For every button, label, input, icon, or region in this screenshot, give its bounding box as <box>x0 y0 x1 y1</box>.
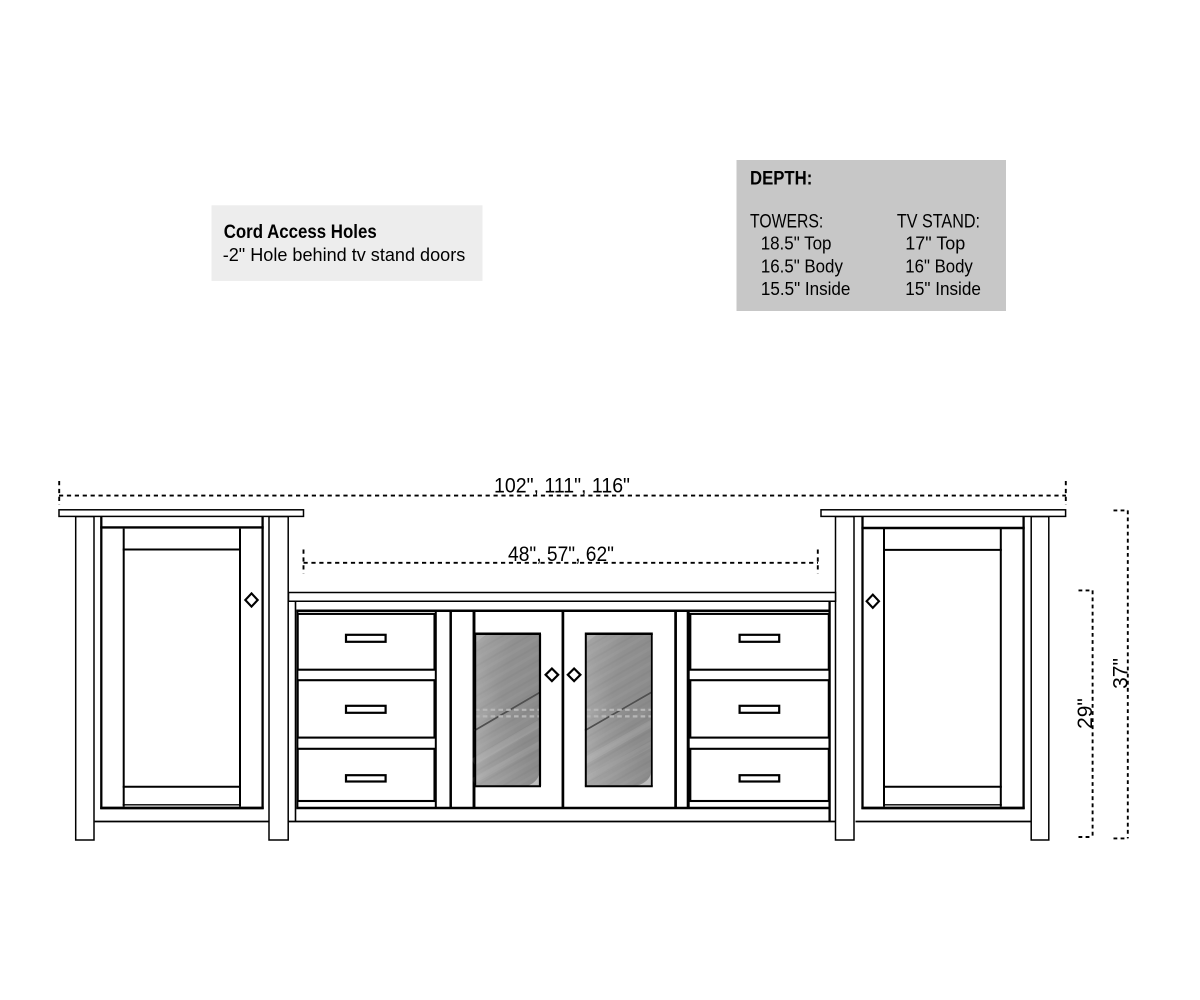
svg-text:Cord Access Holes: Cord Access Holes <box>224 221 377 243</box>
svg-text:15" Inside: 15" Inside <box>905 278 981 299</box>
svg-text:TOWERS:: TOWERS: <box>750 212 823 233</box>
svg-text:18.5" Top: 18.5" Top <box>761 233 832 254</box>
svg-text:16" Body: 16" Body <box>905 255 973 276</box>
svg-text:16.5" Body: 16.5" Body <box>761 255 844 276</box>
svg-text:102", 111", 116": 102", 111", 116" <box>494 474 630 498</box>
svg-text:29": 29" <box>1074 698 1097 729</box>
svg-text:TV STAND:: TV STAND: <box>897 212 980 233</box>
svg-text:37": 37" <box>1109 658 1132 689</box>
svg-text:48", 57", 62": 48", 57", 62" <box>508 542 614 566</box>
svg-text:-2" Hole behind tv stand doors: -2" Hole behind tv stand doors <box>223 244 466 265</box>
svg-text:15.5" Inside: 15.5" Inside <box>761 278 851 299</box>
svg-text:17" Top: 17" Top <box>905 233 965 254</box>
svg-text:DEPTH:: DEPTH: <box>750 167 812 189</box>
